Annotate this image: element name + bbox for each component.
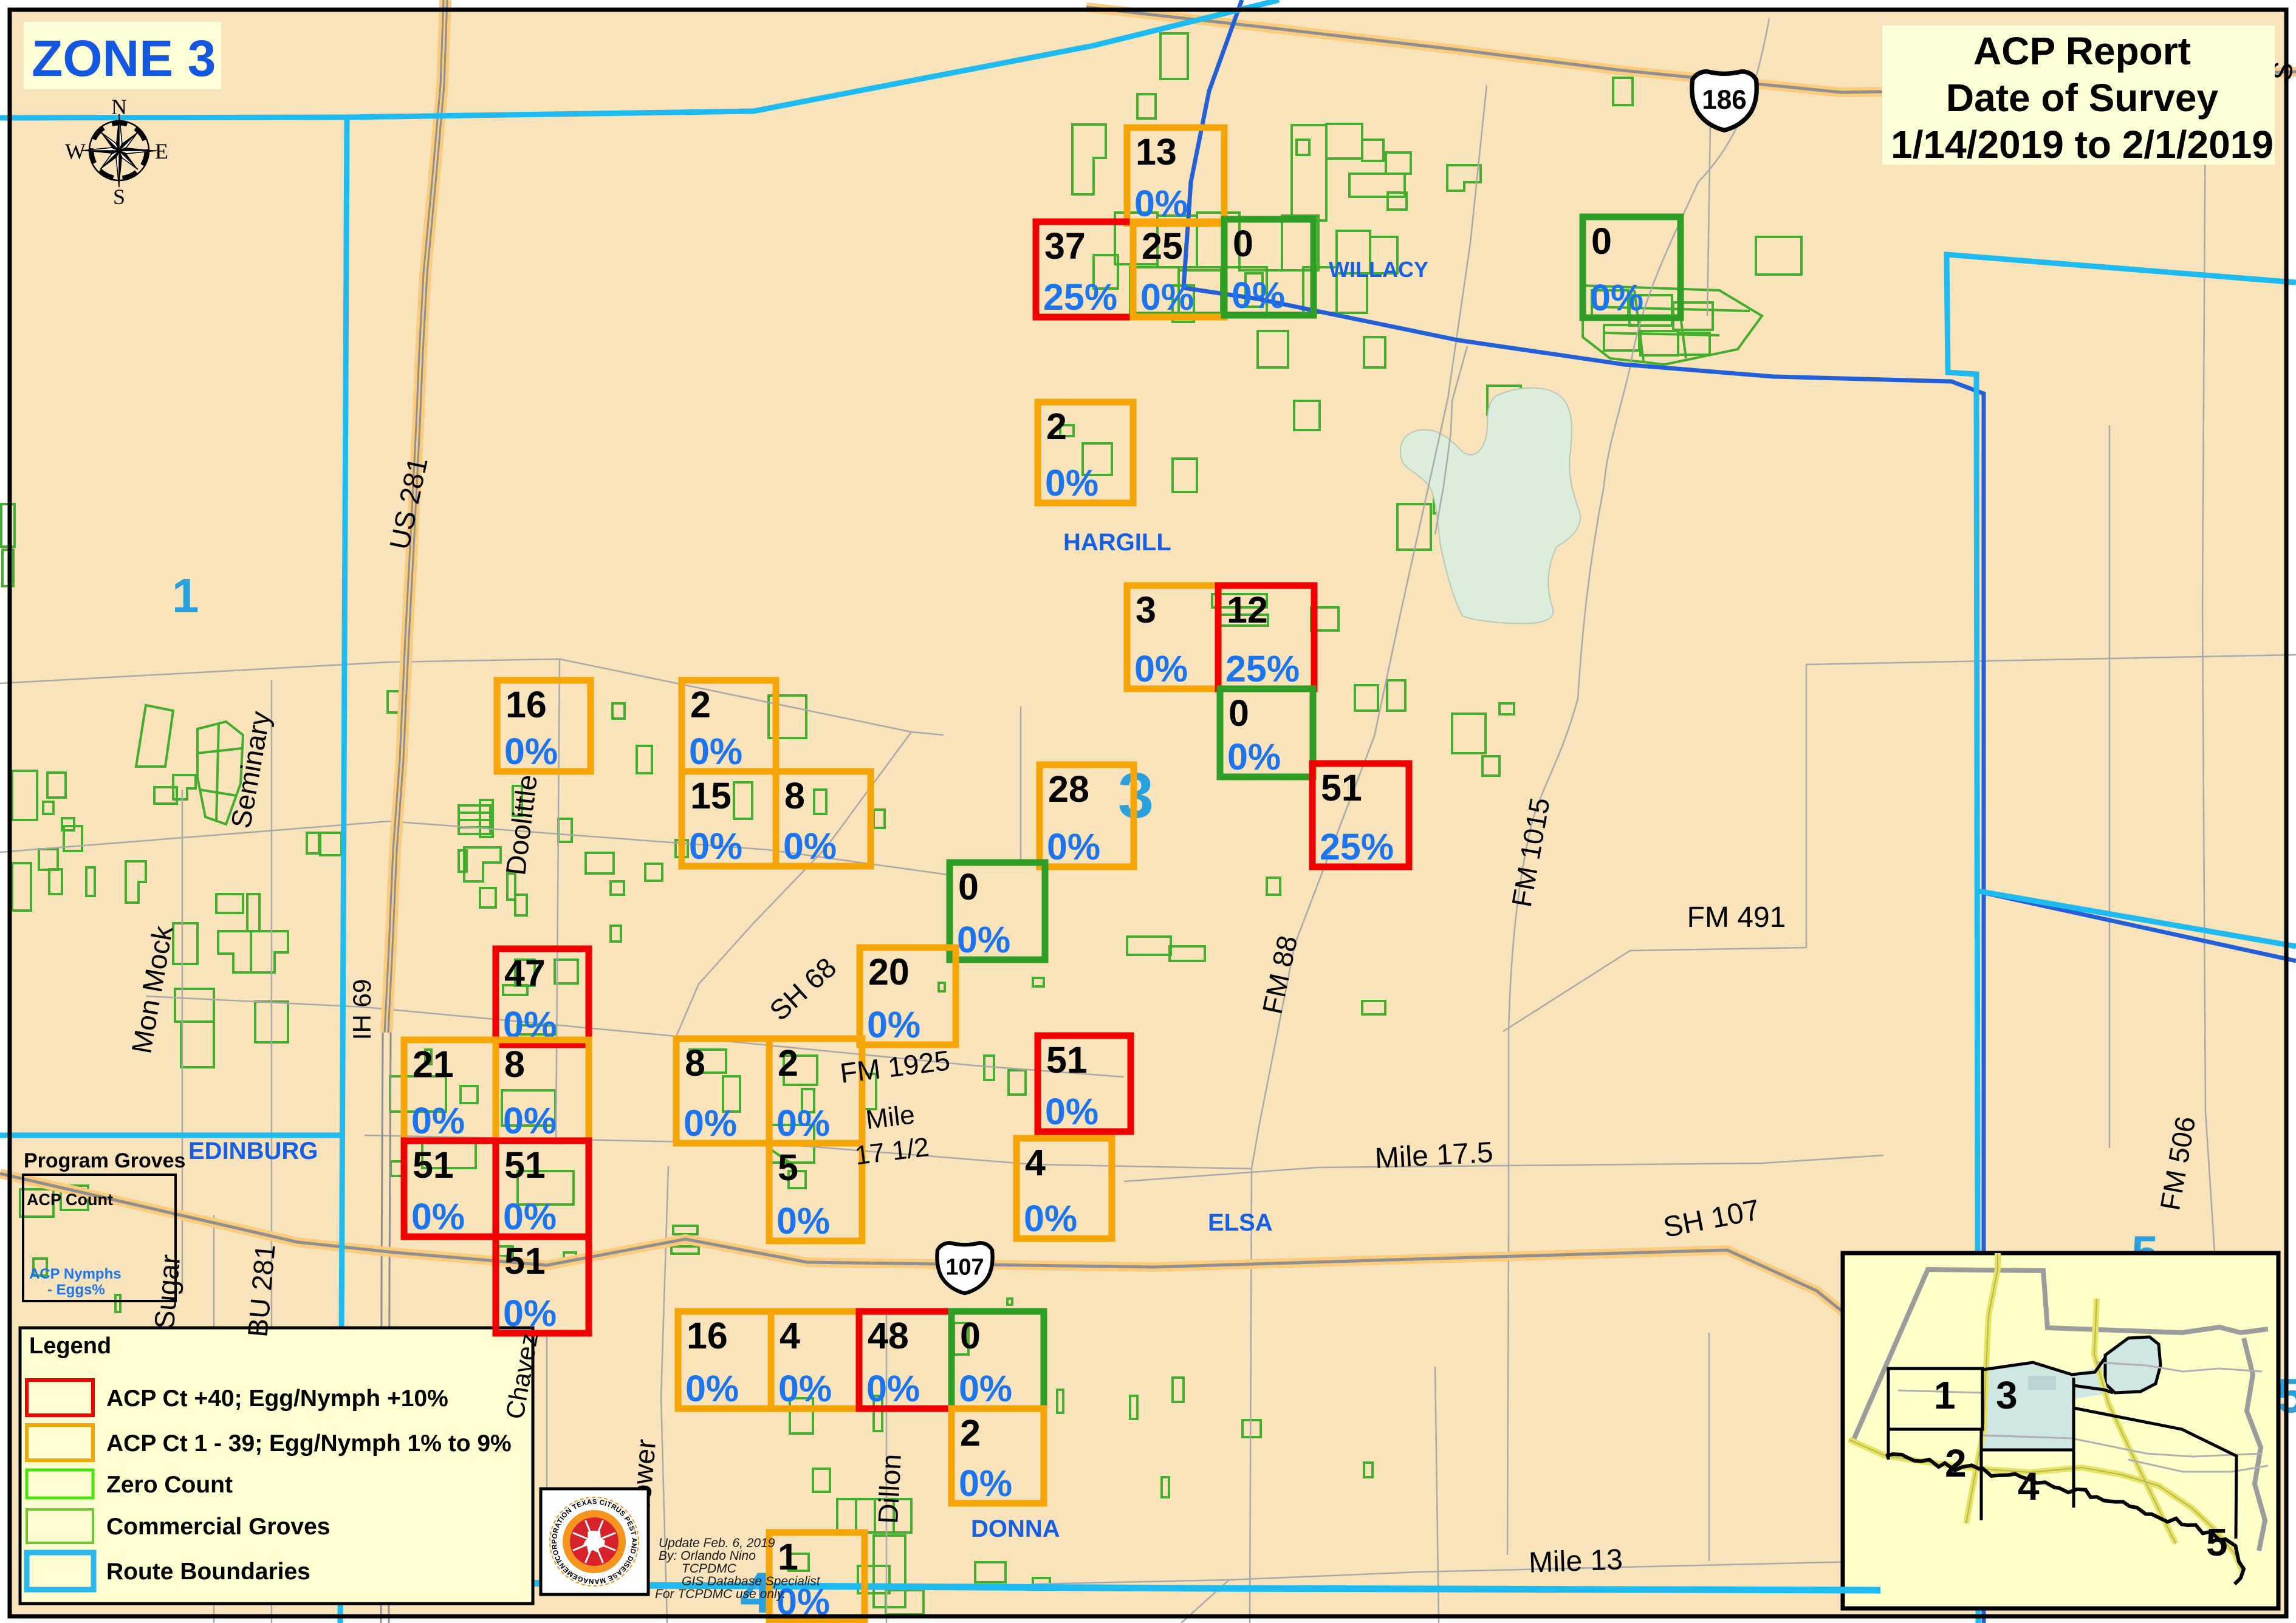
svg-text:0%: 0% <box>866 1368 920 1409</box>
svg-text:0%: 0% <box>867 1004 920 1045</box>
svg-text:51: 51 <box>1321 767 1362 808</box>
svg-text:0%: 0% <box>1134 183 1188 224</box>
svg-text:0: 0 <box>1591 220 1612 262</box>
svg-text:N: N <box>111 95 127 119</box>
svg-text:0%: 0% <box>959 1463 1012 1504</box>
svg-text:8: 8 <box>784 775 805 816</box>
svg-text:1: 1 <box>172 569 199 623</box>
svg-text:51: 51 <box>413 1144 454 1186</box>
svg-text:16: 16 <box>687 1315 728 1356</box>
svg-text:0%: 0% <box>689 731 742 772</box>
svg-text:1: 1 <box>1934 1373 1956 1417</box>
svg-text:13: 13 <box>1136 131 1177 173</box>
svg-text:FM 491: FM 491 <box>1687 901 1786 934</box>
svg-text:2: 2 <box>778 1042 798 1084</box>
svg-text:0%: 0% <box>1227 736 1281 777</box>
svg-text:- Eggs%: - Eggs% <box>47 1282 105 1298</box>
svg-text:0%: 0% <box>685 1368 739 1409</box>
svg-text:2: 2 <box>960 1412 981 1454</box>
svg-text:0%: 0% <box>411 1196 465 1237</box>
svg-text:0%: 0% <box>504 731 558 772</box>
svg-text:12: 12 <box>1227 589 1268 630</box>
svg-text:For TCPDMC use only.: For TCPDMC use only. <box>655 1587 786 1601</box>
svg-text:0%: 0% <box>411 1100 465 1141</box>
svg-text:2: 2 <box>1945 1441 1967 1485</box>
svg-text:WILLACY: WILLACY <box>1329 257 1428 282</box>
svg-text:2: 2 <box>1046 406 1067 447</box>
svg-text:8: 8 <box>504 1044 525 1085</box>
svg-text:Update Feb. 6, 2019: Update Feb. 6, 2019 <box>659 1536 775 1550</box>
svg-text:2: 2 <box>690 684 711 725</box>
svg-text:186: 186 <box>1702 85 1747 115</box>
svg-text:W: W <box>65 139 86 163</box>
svg-text:TCPDMC: TCPDMC <box>682 1562 737 1576</box>
svg-text:0: 0 <box>958 866 979 907</box>
svg-text:25%: 25% <box>1043 276 1117 318</box>
svg-text:Legend: Legend <box>29 1333 111 1359</box>
svg-text:0%: 0% <box>776 1200 830 1242</box>
svg-text:0%: 0% <box>1140 276 1194 318</box>
svg-text:Date of Survey: Date of Survey <box>1946 76 2219 120</box>
svg-text:0%: 0% <box>778 1368 832 1409</box>
svg-text:3: 3 <box>1136 589 1156 630</box>
svg-text:ACP Ct 1 - 39; Egg/Nymph 1% to: ACP Ct 1 - 39; Egg/Nymph 1% to 9% <box>106 1430 512 1457</box>
svg-text:ACP Ct +40; Egg/Nymph +10%: ACP Ct +40; Egg/Nymph +10% <box>106 1386 448 1412</box>
svg-text:48: 48 <box>868 1315 909 1356</box>
svg-text:1: 1 <box>778 1536 798 1577</box>
svg-text:0%: 0% <box>684 1102 737 1144</box>
svg-text:0%: 0% <box>783 825 837 867</box>
svg-text:Zero Count: Zero Count <box>106 1472 233 1498</box>
svg-text:5: 5 <box>2206 1520 2228 1564</box>
svg-text:51: 51 <box>1046 1039 1088 1081</box>
svg-text:0: 0 <box>1233 223 1253 264</box>
svg-text:0%: 0% <box>1045 1091 1098 1132</box>
svg-text:ZONE 3: ZONE 3 <box>32 30 216 87</box>
svg-text:25: 25 <box>1142 225 1183 267</box>
svg-text:4: 4 <box>780 1315 800 1356</box>
svg-text:GIS Database Specialist: GIS Database Specialist <box>682 1574 821 1588</box>
svg-text:S: S <box>113 185 125 209</box>
svg-text:4: 4 <box>2018 1464 2040 1508</box>
svg-text:ACP Count: ACP Count <box>27 1191 113 1209</box>
svg-text:25%: 25% <box>1225 648 1300 689</box>
svg-text:Dillon: Dillon <box>872 1453 907 1525</box>
svg-text:3: 3 <box>1996 1373 2018 1417</box>
svg-text:8: 8 <box>685 1042 705 1084</box>
svg-text:ACP Nymphs: ACP Nymphs <box>29 1266 122 1282</box>
svg-text:IH 69: IH 69 <box>348 979 376 1040</box>
svg-text:Mile 13: Mile 13 <box>1528 1543 1623 1579</box>
svg-text:51: 51 <box>504 1240 546 1282</box>
svg-text:5: 5 <box>778 1147 798 1188</box>
svg-text:0%: 0% <box>1590 277 1643 318</box>
svg-text:16: 16 <box>505 684 547 725</box>
svg-text:28: 28 <box>1048 768 1089 810</box>
svg-text:4: 4 <box>1025 1142 1046 1183</box>
svg-text:0%: 0% <box>689 825 742 867</box>
svg-text:1/14/2019 to 2/1/2019: 1/14/2019 to 2/1/2019 <box>1891 123 2274 166</box>
svg-text:0%: 0% <box>957 919 1010 960</box>
svg-text:0%: 0% <box>503 1100 557 1141</box>
svg-text:Program Groves: Program Groves <box>24 1149 185 1172</box>
svg-text:51: 51 <box>504 1144 546 1186</box>
svg-text:DONNA: DONNA <box>971 1515 1060 1542</box>
svg-text:0%: 0% <box>503 1196 557 1237</box>
svg-text:0%: 0% <box>959 1368 1012 1409</box>
svg-text:Mile: Mile <box>864 1099 916 1135</box>
svg-text:107: 107 <box>945 1255 984 1280</box>
svg-text:Mile 17.5: Mile 17.5 <box>1374 1136 1494 1175</box>
svg-text:0: 0 <box>1229 692 1249 734</box>
svg-text:0%: 0% <box>1024 1198 1077 1239</box>
svg-text:0: 0 <box>960 1315 981 1356</box>
svg-text:25%: 25% <box>1320 826 1394 867</box>
svg-text:By: Orlando Nino: By: Orlando Nino <box>659 1549 756 1563</box>
svg-text:0%: 0% <box>1134 648 1188 689</box>
svg-text:Route Boundaries: Route Boundaries <box>106 1559 310 1585</box>
svg-text:0%: 0% <box>503 1293 557 1334</box>
svg-text:0%: 0% <box>1045 462 1098 504</box>
svg-text:0%: 0% <box>1047 826 1100 867</box>
svg-text:ELSA: ELSA <box>1208 1209 1273 1236</box>
svg-text:HARGILL: HARGILL <box>1063 529 1171 556</box>
svg-text:Sugar: Sugar <box>148 1253 187 1330</box>
svg-text:20: 20 <box>868 951 910 993</box>
svg-text:Commercial Groves: Commercial Groves <box>106 1514 331 1540</box>
svg-text:47: 47 <box>504 952 546 994</box>
svg-text:21: 21 <box>413 1044 454 1085</box>
svg-text:0%: 0% <box>776 1102 830 1144</box>
svg-text:37: 37 <box>1044 225 1086 267</box>
svg-text:EDINBURG: EDINBURG <box>188 1138 318 1164</box>
svg-text:ACP Report: ACP Report <box>1973 29 2191 73</box>
svg-text:E: E <box>155 139 168 163</box>
svg-text:15: 15 <box>690 775 732 816</box>
svg-text:0%: 0% <box>1232 275 1285 316</box>
